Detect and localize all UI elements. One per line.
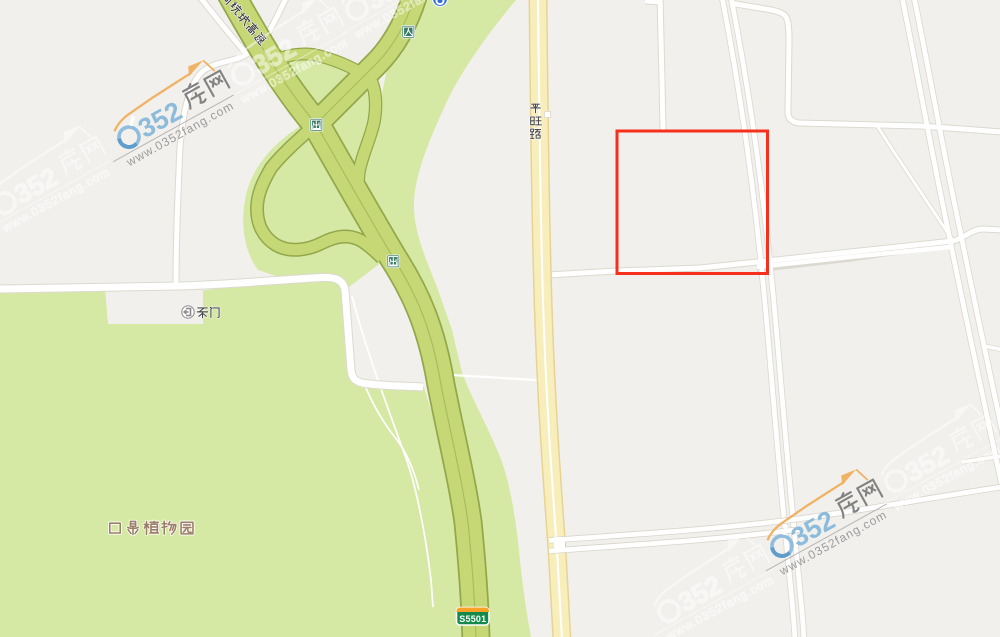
- svg-text:S5501: S5501: [459, 614, 486, 624]
